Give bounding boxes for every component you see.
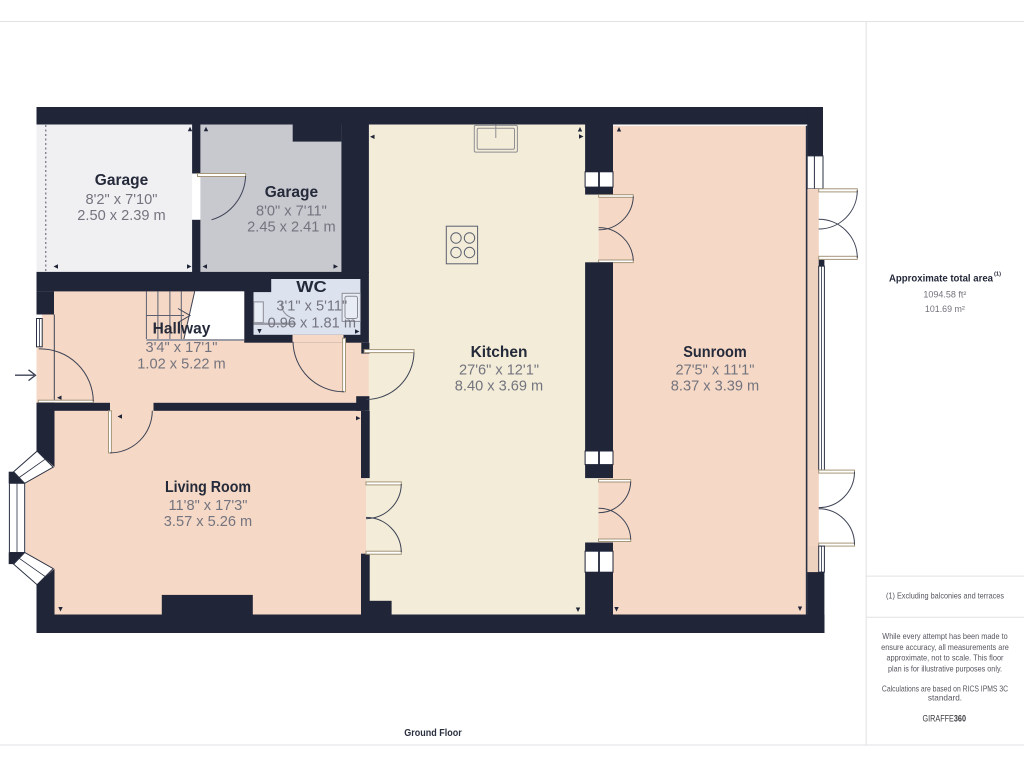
svg-text:Hallway: Hallway — [153, 320, 211, 337]
svg-text:GIRAFFE360: GIRAFFE360 — [923, 713, 967, 723]
svg-text:Calculations are based on RICS: Calculations are based on RICS IPMS 3C — [882, 685, 1008, 694]
svg-text:1094.58 ft²: 1094.58 ft² — [923, 290, 966, 300]
svg-text:3'1" x 5'11": 3'1" x 5'11" — [276, 298, 347, 314]
svg-text:1.02 x 5.22 m: 1.02 x 5.22 m — [137, 356, 225, 372]
svg-text:Sunroom: Sunroom — [683, 344, 747, 361]
svg-text:Garage: Garage — [265, 184, 319, 201]
svg-text:11'8" x 17'3": 11'8" x 17'3" — [169, 498, 248, 514]
svg-text:plan is for illustrative purpo: plan is for illustrative purposes only. — [888, 664, 1002, 673]
svg-text:Garage: Garage — [95, 172, 149, 189]
svg-text:8'0" x 7'11": 8'0" x 7'11" — [256, 204, 327, 220]
svg-text:2.50 x 2.39 m: 2.50 x 2.39 m — [77, 208, 165, 224]
svg-text:101.69 m²: 101.69 m² — [925, 304, 965, 314]
svg-text:Kitchen: Kitchen — [471, 344, 528, 361]
svg-text:27'6" x 12'1": 27'6" x 12'1" — [459, 362, 539, 378]
svg-text:standard.: standard. — [928, 694, 962, 703]
svg-text:Approximate total area: Approximate total area — [889, 273, 993, 284]
svg-text:8.37 x 3.39 m: 8.37 x 3.39 m — [671, 378, 759, 394]
svg-text:8.40 x 3.69 m: 8.40 x 3.69 m — [455, 378, 543, 394]
svg-text:8'2" x 7'10": 8'2" x 7'10" — [86, 192, 158, 208]
svg-text:3'4" x 17'1": 3'4" x 17'1" — [146, 340, 218, 356]
svg-text:ensure accuracy, all measureme: ensure accuracy, all measurements are — [881, 643, 1009, 652]
svg-text:27'5" x 11'1": 27'5" x 11'1" — [676, 362, 755, 378]
svg-text:2.45 x 2.41 m: 2.45 x 2.41 m — [247, 220, 335, 236]
svg-text:(1): (1) — [994, 272, 1001, 278]
svg-text:WC: WC — [296, 279, 327, 296]
svg-text:While every attempt has been m: While every attempt has been made to — [882, 632, 1008, 641]
svg-text:0.96 x 1.81 m: 0.96 x 1.81 m — [268, 315, 356, 331]
svg-text:3.57 x 5.26 m: 3.57 x 5.26 m — [164, 514, 252, 530]
svg-text:approximate, not to scale. Thi: approximate, not to scale. This floor — [886, 654, 1003, 663]
svg-text:(1) Excluding balconies and te: (1) Excluding balconies and terraces — [886, 592, 1004, 601]
svg-text:Living Room: Living Room — [165, 479, 251, 496]
svg-text:Ground Floor: Ground Floor — [404, 727, 462, 739]
